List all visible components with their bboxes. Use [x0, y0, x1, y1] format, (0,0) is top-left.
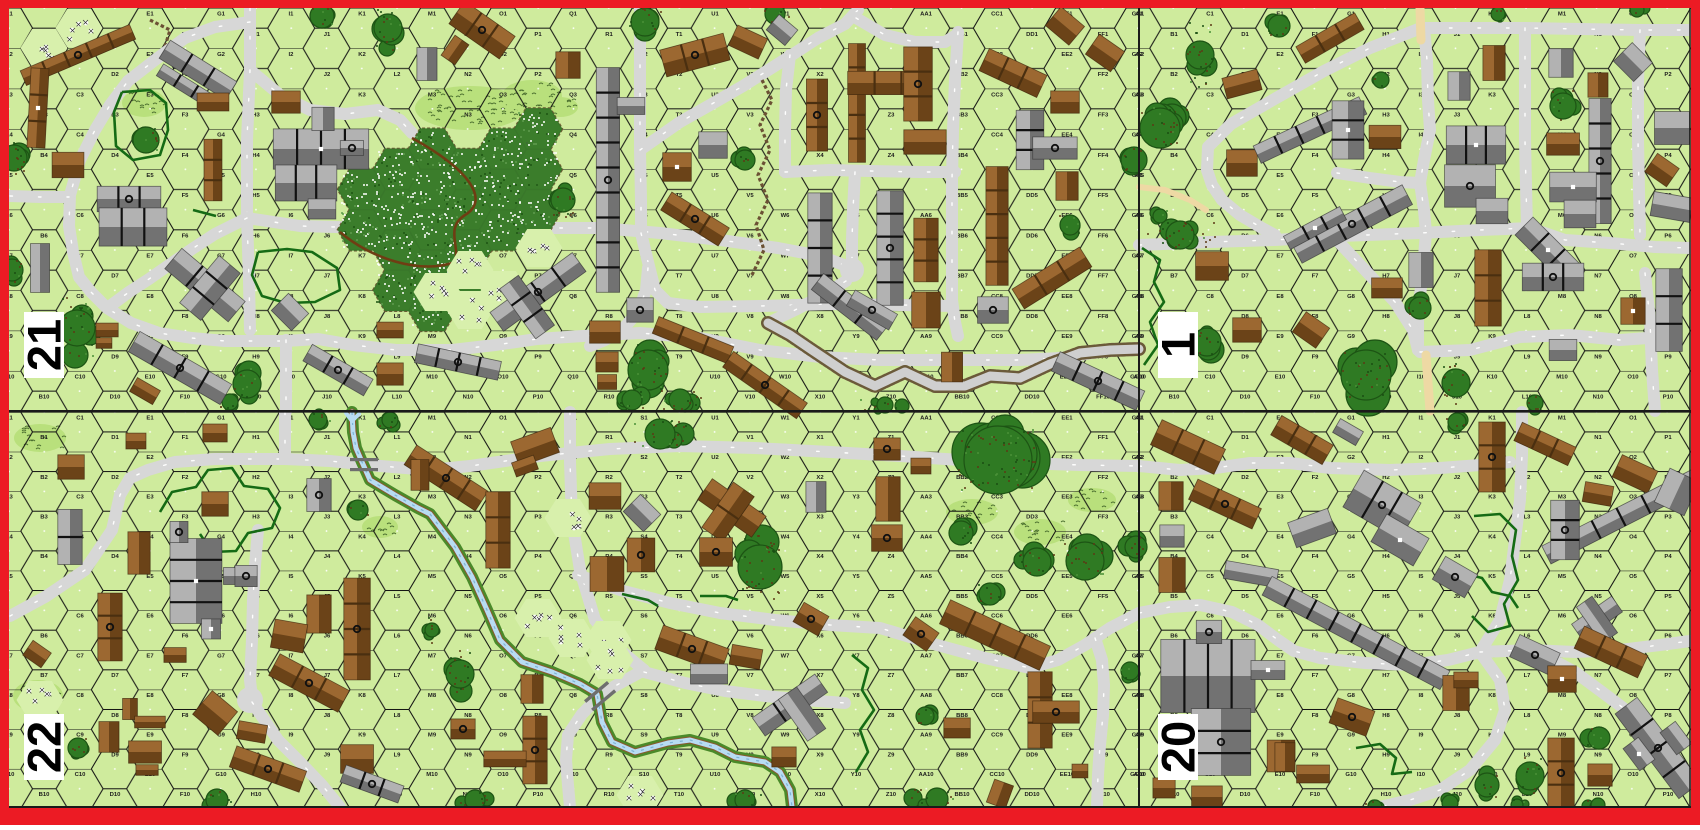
svg-text:FF8: FF8: [1098, 314, 1109, 320]
svg-text:D7: D7: [1241, 274, 1249, 280]
svg-text:Z4: Z4: [888, 153, 896, 159]
svg-text:J1: J1: [324, 32, 331, 38]
svg-text:T10: T10: [674, 792, 685, 798]
svg-text:G10: G10: [1345, 772, 1357, 778]
svg-text:E9: E9: [1276, 733, 1284, 739]
svg-text:D7: D7: [111, 274, 119, 280]
svg-text:P1: P1: [534, 32, 542, 38]
svg-text:D5: D5: [1241, 594, 1249, 600]
svg-text:H4: H4: [1382, 153, 1390, 159]
svg-text:T3: T3: [676, 515, 684, 521]
svg-text:H4: H4: [252, 153, 260, 159]
svg-text:F8: F8: [182, 713, 190, 719]
svg-text:I9: I9: [1419, 733, 1425, 739]
svg-text:E8: E8: [146, 294, 154, 300]
svg-text:Y3: Y3: [852, 495, 860, 501]
svg-text:M8: M8: [1558, 294, 1567, 300]
svg-text:G4: G4: [217, 133, 226, 139]
svg-text:F5: F5: [182, 193, 190, 199]
svg-text:W3: W3: [781, 495, 791, 501]
svg-text:L2: L2: [394, 475, 402, 481]
svg-text:J6: J6: [324, 233, 331, 239]
svg-text:DD9: DD9: [1026, 752, 1039, 758]
svg-text:N7: N7: [1594, 673, 1602, 679]
svg-text:M8: M8: [428, 693, 437, 699]
svg-text:G8: G8: [1347, 693, 1356, 699]
svg-text:J1: J1: [1454, 435, 1461, 441]
svg-text:E5: E5: [1276, 173, 1284, 179]
svg-text:EE8: EE8: [1061, 693, 1073, 699]
svg-text:P10: P10: [533, 395, 544, 401]
svg-text:E8: E8: [146, 693, 154, 699]
svg-text:H3: H3: [1382, 112, 1390, 118]
svg-text:L8: L8: [1524, 713, 1532, 719]
svg-text:V5: V5: [746, 594, 754, 600]
svg-text:U10: U10: [710, 375, 722, 381]
svg-text:R10: R10: [604, 395, 616, 401]
svg-text:Z3: Z3: [888, 112, 896, 118]
svg-text:J1: J1: [324, 435, 331, 441]
svg-text:W5: W5: [781, 574, 791, 580]
svg-text:D1: D1: [1241, 435, 1249, 441]
svg-text:M10: M10: [426, 772, 438, 778]
svg-text:O6: O6: [1629, 614, 1638, 620]
svg-text:L7: L7: [394, 673, 402, 679]
svg-text:M9: M9: [428, 733, 437, 739]
svg-text:K1: K1: [358, 12, 366, 18]
svg-text:B2: B2: [1170, 72, 1178, 78]
svg-text:M3: M3: [1558, 495, 1567, 501]
svg-text:P10: P10: [1663, 792, 1674, 798]
svg-text:H2: H2: [252, 475, 260, 481]
svg-text:U1: U1: [711, 12, 719, 18]
svg-text:N5: N5: [1594, 594, 1602, 600]
svg-text:X2: X2: [816, 475, 824, 481]
svg-text:F7: F7: [182, 673, 190, 679]
svg-text:F9: F9: [1312, 354, 1320, 360]
svg-text:Q1: Q1: [569, 12, 578, 18]
svg-text:H1: H1: [1382, 435, 1390, 441]
svg-text:L1: L1: [394, 435, 402, 441]
svg-text:E4: E4: [1276, 534, 1284, 540]
svg-text:I1: I1: [1419, 415, 1425, 421]
svg-text:CC4: CC4: [991, 133, 1004, 139]
svg-text:V3: V3: [746, 112, 754, 118]
svg-text:Z8: Z8: [888, 713, 896, 719]
svg-text:J6: J6: [1454, 634, 1461, 640]
svg-text:F8: F8: [1312, 713, 1320, 719]
svg-text:B1: B1: [40, 435, 48, 441]
svg-text:K9: K9: [358, 334, 366, 340]
svg-text:N5: N5: [464, 594, 472, 600]
svg-text:B2: B2: [1170, 475, 1178, 481]
svg-text:P10: P10: [533, 792, 544, 798]
svg-text:M1: M1: [1558, 12, 1567, 18]
svg-text:W4: W4: [781, 534, 791, 540]
svg-text:DD5: DD5: [1026, 594, 1039, 600]
svg-text:F10: F10: [180, 395, 191, 401]
svg-text:AA9: AA9: [920, 733, 933, 739]
svg-text:B6: B6: [1170, 634, 1178, 640]
svg-text:D4: D4: [1241, 554, 1249, 560]
svg-text:F4: F4: [182, 153, 190, 159]
svg-text:Y9: Y9: [852, 733, 860, 739]
svg-text:Z7: Z7: [888, 673, 896, 679]
svg-text:J4: J4: [1454, 554, 1461, 560]
svg-text:E2: E2: [1276, 52, 1284, 58]
svg-text:L3: L3: [394, 515, 402, 521]
svg-text:N4: N4: [1594, 554, 1602, 560]
svg-text:C6: C6: [1206, 614, 1214, 620]
svg-text:G4: G4: [1347, 534, 1356, 540]
svg-text:E6: E6: [146, 614, 154, 620]
svg-text:F9: F9: [1312, 752, 1320, 758]
svg-text:L6: L6: [394, 634, 402, 640]
svg-text:K9: K9: [358, 733, 366, 739]
svg-text:E7: E7: [1276, 653, 1284, 659]
svg-text:AA7: AA7: [920, 653, 933, 659]
svg-text:O10: O10: [497, 772, 509, 778]
svg-text:O3: O3: [499, 92, 508, 98]
svg-text:X10: X10: [815, 792, 826, 798]
svg-text:AA4: AA4: [920, 534, 933, 540]
svg-text:E10: E10: [1275, 375, 1286, 381]
svg-text:V8: V8: [746, 314, 754, 320]
svg-text:E10: E10: [145, 375, 156, 381]
svg-text:J3: J3: [324, 515, 331, 521]
svg-text:W7: W7: [781, 653, 791, 659]
svg-text:H10: H10: [251, 792, 263, 798]
svg-text:M1: M1: [1558, 415, 1567, 421]
svg-text:E9: E9: [1276, 334, 1284, 340]
svg-text:X2: X2: [816, 72, 824, 78]
svg-text:O1: O1: [499, 12, 508, 18]
svg-text:N1: N1: [1594, 435, 1602, 441]
svg-text:P7: P7: [1664, 673, 1672, 679]
svg-text:J4: J4: [324, 554, 331, 560]
svg-text:D2: D2: [1241, 475, 1249, 481]
svg-text:E5: E5: [146, 574, 154, 580]
svg-text:N8: N8: [1594, 713, 1602, 719]
svg-text:U10: U10: [710, 772, 722, 778]
svg-text:P2: P2: [534, 475, 542, 481]
svg-text:L7: L7: [1524, 673, 1532, 679]
svg-text:EE2: EE2: [1061, 52, 1073, 58]
svg-text:O8: O8: [499, 693, 508, 699]
svg-text:AA8: AA8: [920, 693, 933, 699]
svg-text:O9: O9: [499, 733, 508, 739]
svg-text:R1: R1: [605, 32, 613, 38]
svg-text:K2: K2: [358, 52, 366, 58]
svg-text:J10: J10: [322, 395, 333, 401]
svg-text:X3: X3: [816, 515, 824, 521]
svg-text:K3: K3: [1488, 92, 1496, 98]
svg-text:J9: J9: [324, 752, 331, 758]
svg-text:E8: E8: [1276, 693, 1284, 699]
svg-text:J2: J2: [1454, 475, 1461, 481]
svg-text:CC1: CC1: [991, 12, 1004, 18]
svg-text:J8: J8: [1454, 314, 1461, 320]
svg-text:R10: R10: [604, 792, 616, 798]
svg-text:Y9: Y9: [852, 334, 860, 340]
svg-text:D2: D2: [111, 72, 119, 78]
svg-text:Q5: Q5: [569, 173, 578, 179]
svg-text:G9: G9: [1347, 334, 1356, 340]
svg-text:B2: B2: [40, 475, 48, 481]
svg-text:C7: C7: [76, 653, 84, 659]
svg-text:H1: H1: [252, 435, 260, 441]
svg-text:F3: F3: [182, 515, 190, 521]
svg-text:I4: I4: [289, 534, 295, 540]
svg-text:R3: R3: [605, 515, 613, 521]
svg-text:C3: C3: [76, 92, 84, 98]
svg-text:T9: T9: [676, 354, 684, 360]
svg-text:CC3: CC3: [991, 92, 1004, 98]
svg-text:B10: B10: [39, 792, 51, 798]
svg-text:D10: D10: [1240, 395, 1252, 401]
svg-text:D7: D7: [111, 673, 119, 679]
svg-text:O7: O7: [499, 254, 508, 260]
svg-text:B4: B4: [40, 554, 48, 560]
svg-text:BB9: BB9: [956, 752, 969, 758]
svg-text:Q8: Q8: [569, 294, 578, 300]
svg-text:D4: D4: [111, 554, 119, 560]
svg-text:G1: G1: [1347, 415, 1356, 421]
svg-text:C8: C8: [76, 693, 84, 699]
svg-text:DD10: DD10: [1024, 395, 1040, 401]
svg-text:E2: E2: [146, 455, 154, 461]
svg-text:I9: I9: [289, 733, 295, 739]
svg-text:K5: K5: [1488, 574, 1496, 580]
svg-text:C4: C4: [76, 133, 84, 139]
svg-text:CC6: CC6: [991, 614, 1004, 620]
svg-text:FF7: FF7: [1098, 274, 1109, 280]
svg-text:G9: G9: [1347, 733, 1356, 739]
svg-text:E7: E7: [146, 653, 154, 659]
svg-text:P9: P9: [1664, 354, 1672, 360]
svg-text:V9: V9: [746, 354, 754, 360]
svg-text:FF5: FF5: [1098, 594, 1109, 600]
svg-text:L5: L5: [394, 594, 402, 600]
svg-text:K8: K8: [358, 294, 366, 300]
svg-text:O6: O6: [499, 614, 508, 620]
svg-text:S6: S6: [640, 614, 648, 620]
svg-text:R9: R9: [605, 752, 613, 758]
svg-text:AA10: AA10: [918, 772, 934, 778]
svg-text:J2: J2: [324, 72, 331, 78]
svg-text:E10: E10: [1275, 772, 1286, 778]
svg-text:K8: K8: [358, 693, 366, 699]
svg-text:DD5: DD5: [1026, 193, 1039, 199]
svg-text:E9: E9: [146, 733, 154, 739]
svg-text:W2: W2: [781, 455, 791, 461]
svg-text:X5: X5: [816, 594, 824, 600]
svg-text:D1: D1: [1241, 32, 1249, 38]
svg-text:G2: G2: [1347, 455, 1356, 461]
svg-text:22: 22: [18, 721, 71, 773]
svg-text:W9: W9: [781, 733, 791, 739]
svg-text:C5: C5: [1206, 574, 1214, 580]
svg-text:M10: M10: [1556, 375, 1568, 381]
svg-text:F10: F10: [180, 792, 191, 798]
svg-text:C10: C10: [75, 375, 87, 381]
svg-text:P3: P3: [534, 515, 542, 521]
svg-text:P4: P4: [534, 554, 542, 560]
svg-text:D10: D10: [110, 395, 122, 401]
svg-text:U9: U9: [711, 733, 719, 739]
svg-text:DD3: DD3: [1026, 515, 1039, 521]
svg-text:X1: X1: [816, 435, 824, 441]
svg-text:C6: C6: [76, 213, 84, 219]
svg-text:D1: D1: [111, 435, 119, 441]
svg-text:F1: F1: [182, 435, 190, 441]
svg-text:Q3: Q3: [569, 92, 578, 98]
svg-text:E7: E7: [146, 254, 154, 260]
svg-text:V10: V10: [745, 395, 756, 401]
svg-text:N10: N10: [463, 395, 475, 401]
svg-text:AA9: AA9: [920, 334, 933, 340]
svg-text:J3: J3: [1454, 515, 1461, 521]
svg-text:X4: X4: [816, 153, 824, 159]
svg-text:I6: I6: [289, 614, 295, 620]
svg-text:C10: C10: [1205, 375, 1217, 381]
svg-text:R2: R2: [605, 475, 613, 481]
svg-text:Y8: Y8: [852, 693, 860, 699]
svg-text:Q6: Q6: [569, 213, 578, 219]
svg-text:O10: O10: [1627, 375, 1639, 381]
svg-text:L9: L9: [394, 752, 402, 758]
svg-text:D10: D10: [110, 792, 122, 798]
svg-text:J9: J9: [1454, 752, 1461, 758]
svg-text:EE4: EE4: [1061, 534, 1073, 540]
svg-text:O5: O5: [1629, 574, 1638, 580]
svg-text:X9: X9: [816, 752, 824, 758]
svg-text:EE3: EE3: [1061, 495, 1073, 501]
svg-text:Z4: Z4: [888, 554, 896, 560]
svg-text:Y10: Y10: [851, 772, 862, 778]
svg-text:M3: M3: [428, 495, 437, 501]
svg-text:H9: H9: [252, 354, 260, 360]
svg-text:P10: P10: [1663, 395, 1674, 401]
svg-text:M3: M3: [428, 92, 437, 98]
svg-text:L4: L4: [394, 554, 402, 560]
svg-text:BB10: BB10: [954, 792, 970, 798]
svg-text:O4: O4: [1629, 534, 1638, 540]
svg-text:BB5: BB5: [956, 594, 969, 600]
svg-text:BB10: BB10: [954, 395, 970, 401]
svg-text:O1: O1: [1629, 415, 1638, 421]
svg-text:O10: O10: [497, 375, 509, 381]
svg-text:Y5: Y5: [852, 574, 860, 580]
svg-text:EE8: EE8: [1061, 294, 1073, 300]
svg-text:DD8: DD8: [1026, 314, 1039, 320]
svg-text:M10: M10: [426, 375, 438, 381]
svg-text:E1: E1: [146, 415, 154, 421]
svg-text:S5: S5: [640, 574, 648, 580]
svg-text:CC9: CC9: [991, 733, 1004, 739]
svg-text:S7: S7: [640, 653, 648, 659]
svg-text:J3: J3: [1454, 112, 1461, 118]
svg-text:AA5: AA5: [920, 574, 933, 580]
svg-text:D9: D9: [111, 752, 119, 758]
svg-text:E6: E6: [1276, 614, 1284, 620]
svg-text:E3: E3: [1276, 495, 1284, 501]
svg-text:G1: G1: [217, 12, 226, 18]
svg-text:B6: B6: [40, 233, 48, 239]
svg-text:I3: I3: [289, 495, 295, 501]
svg-text:Q8: Q8: [569, 693, 578, 699]
svg-text:N9: N9: [1594, 752, 1602, 758]
svg-text:P5: P5: [1664, 594, 1672, 600]
svg-text:B6: B6: [40, 634, 48, 640]
svg-text:L3: L3: [1524, 515, 1532, 521]
svg-text:CC3: CC3: [991, 495, 1004, 501]
svg-text:H3: H3: [252, 515, 260, 521]
svg-text:CC4: CC4: [991, 534, 1004, 540]
svg-text:K10: K10: [1487, 375, 1499, 381]
svg-text:C6: C6: [76, 614, 84, 620]
svg-text:I2: I2: [1419, 455, 1425, 461]
svg-text:E3: E3: [146, 495, 154, 501]
svg-text:E6: E6: [1276, 213, 1284, 219]
svg-text:FF3: FF3: [1098, 515, 1109, 521]
svg-text:CC8: CC8: [991, 693, 1004, 699]
svg-text:EE9: EE9: [1061, 733, 1073, 739]
svg-text:F4: F4: [1312, 554, 1320, 560]
svg-text:E8: E8: [1276, 294, 1284, 300]
svg-text:L8: L8: [1524, 314, 1532, 320]
svg-text:E5: E5: [146, 173, 154, 179]
svg-text:Q6: Q6: [569, 614, 578, 620]
svg-text:G5: G5: [1347, 574, 1356, 580]
svg-text:U5: U5: [711, 173, 719, 179]
svg-text:N10: N10: [1593, 792, 1605, 798]
svg-text:U7: U7: [711, 254, 719, 260]
svg-text:T4: T4: [676, 554, 684, 560]
svg-text:G6: G6: [217, 213, 226, 219]
svg-text:N9: N9: [464, 752, 472, 758]
svg-text:P4: P4: [1664, 153, 1672, 159]
svg-text:K1: K1: [1488, 415, 1496, 421]
svg-text:F6: F6: [182, 233, 190, 239]
svg-text:Y1: Y1: [852, 415, 860, 421]
svg-text:T7: T7: [676, 274, 684, 280]
svg-text:J7: J7: [1454, 274, 1461, 280]
svg-text:FF1: FF1: [1098, 435, 1109, 441]
svg-text:M1: M1: [428, 12, 437, 18]
svg-text:I7: I7: [289, 254, 295, 260]
svg-text:O7: O7: [1629, 254, 1638, 260]
svg-text:N9: N9: [1594, 354, 1602, 360]
svg-text:X4: X4: [816, 554, 824, 560]
svg-text:P2: P2: [534, 72, 542, 78]
svg-text:FF4: FF4: [1098, 153, 1109, 159]
svg-text:Z5: Z5: [888, 594, 896, 600]
svg-text:M1: M1: [428, 415, 437, 421]
svg-text:W8: W8: [781, 294, 791, 300]
svg-text:R8: R8: [605, 314, 613, 320]
svg-text:Y6: Y6: [852, 614, 860, 620]
svg-text:G7: G7: [217, 653, 226, 659]
svg-text:F10: F10: [1310, 792, 1321, 798]
svg-text:E7: E7: [1276, 254, 1284, 260]
svg-text:N7: N7: [1594, 274, 1602, 280]
svg-text:DD1: DD1: [1026, 32, 1039, 38]
svg-text:V1: V1: [746, 435, 754, 441]
svg-text:J8: J8: [1454, 713, 1461, 719]
svg-text:J8: J8: [324, 314, 331, 320]
svg-text:N10: N10: [1593, 395, 1605, 401]
